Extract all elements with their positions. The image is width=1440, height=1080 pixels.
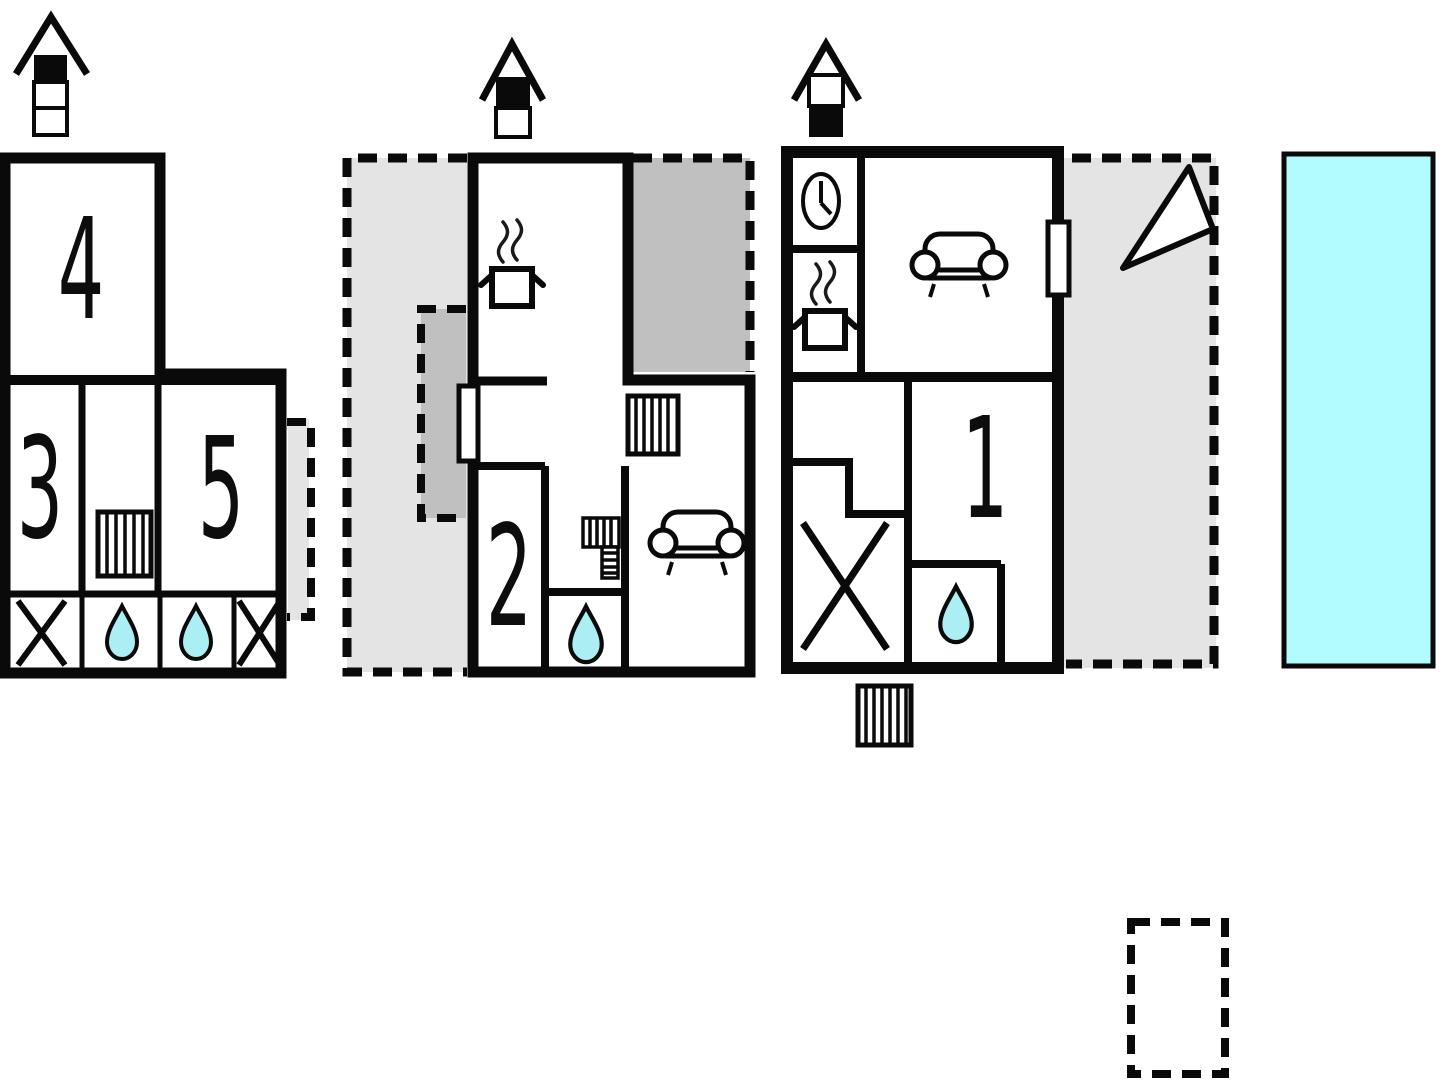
room-4-label: 4 [58, 189, 104, 352]
room-1-label: 1 [962, 388, 1008, 551]
building-right-outline [787, 152, 1058, 668]
building-right: 1 [787, 44, 1216, 745]
balcony-left [288, 419, 309, 620]
floor-level-icon-right [794, 44, 859, 137]
room-5: 5 [198, 408, 244, 571]
building-middle: 2 [347, 44, 750, 672]
window-icon [1048, 222, 1069, 295]
stairs-icon [628, 396, 678, 454]
room-4: 4 [58, 189, 104, 352]
room-2-label: 2 [486, 496, 532, 659]
room-1: 1 [962, 388, 1008, 551]
floor-level-icon-middle [482, 44, 543, 137]
covered-terrace-upper [633, 158, 750, 372]
room-5-label: 5 [198, 408, 244, 571]
stairs-icon [98, 512, 151, 576]
room-2: 2 [486, 496, 532, 659]
stairs-icon [858, 686, 911, 745]
room-3-label: 3 [17, 408, 63, 571]
window-icon [459, 386, 478, 461]
floor-plan-canvas: 4 3 5 [0, 0, 1440, 1080]
pool [1284, 154, 1433, 666]
room-3: 3 [17, 408, 63, 571]
site-plan: 4 3 5 [0, 0, 1440, 1080]
building-left: 4 3 5 [0, 17, 311, 673]
clock-icon [803, 174, 839, 228]
floor-level-icon-left [16, 17, 87, 135]
terrace-detached [1131, 922, 1225, 1074]
